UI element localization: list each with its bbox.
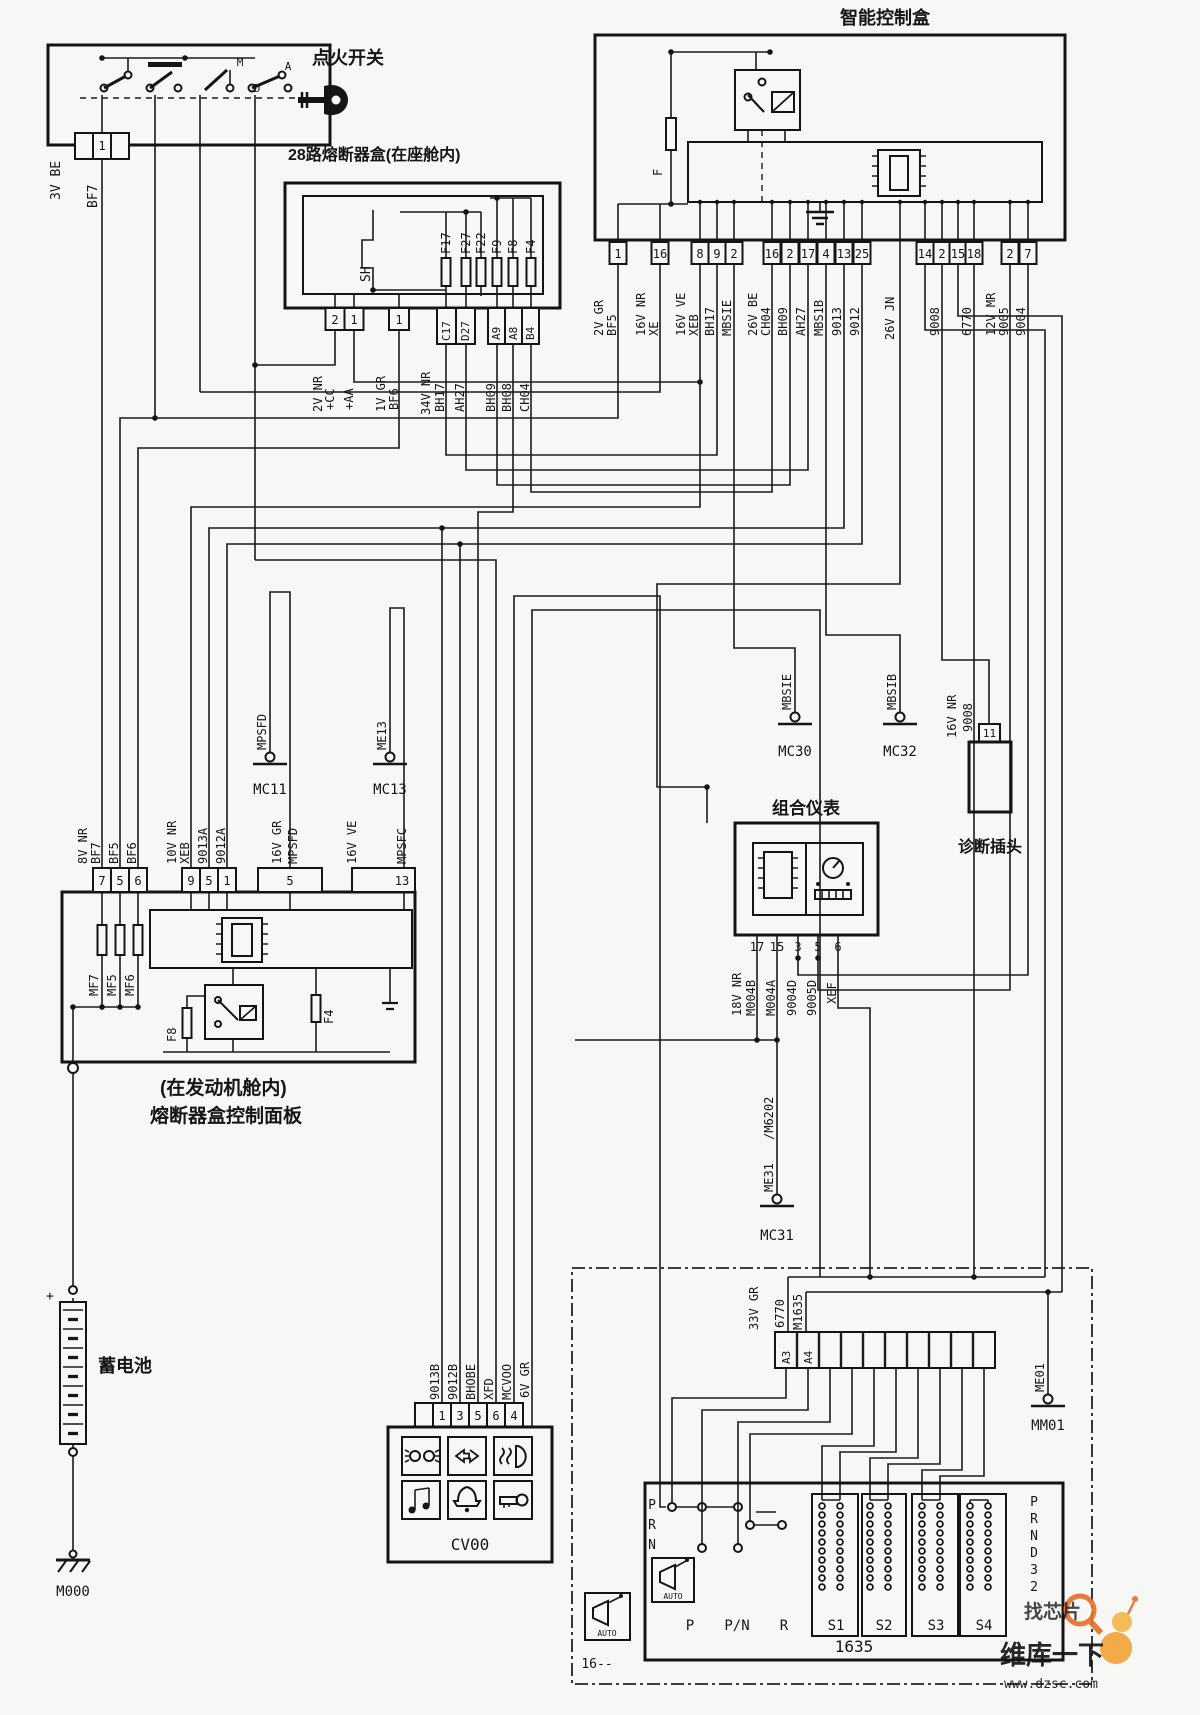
fuse-mf5 — [116, 925, 125, 955]
wire-label: 9008 — [928, 307, 942, 336]
wire-label: 16V NR — [634, 292, 648, 336]
solenoid-label: S2 — [876, 1618, 893, 1634]
cabin-title: 28路熔断器盒(在座舱内) — [288, 145, 460, 164]
wire-label: 12V MR — [984, 292, 998, 336]
pos-m: M — [237, 56, 244, 69]
fuse-f4 — [312, 995, 321, 1022]
pin-num: 3 — [794, 940, 801, 954]
fuse-label: F4 — [524, 240, 538, 254]
cluster-title: 组合仪表 — [772, 798, 841, 818]
wire-label: MBSIE — [720, 300, 734, 336]
wire-label: XE — [647, 322, 661, 336]
solenoid-label: S3 — [928, 1618, 945, 1634]
wire-label: AH27 — [453, 383, 467, 412]
pin-num: 6 — [492, 1409, 499, 1423]
pin-num: 6 — [134, 874, 141, 888]
pos-d: D — [254, 82, 261, 95]
relay-icon — [735, 70, 800, 130]
gear-letter: R — [648, 1518, 656, 1533]
headlight-icon — [405, 1450, 439, 1462]
label-16: 16-- — [581, 1657, 612, 1672]
wire-label: 6770 — [960, 307, 974, 336]
wire-label: 6V GR — [518, 1361, 532, 1398]
wire-label: 10V NR — [165, 820, 179, 864]
gear-letter: P — [1030, 1495, 1038, 1510]
wire-label: 6770 — [773, 1299, 787, 1328]
fuse-label: MF6 — [123, 974, 137, 996]
pin-num: 17 — [801, 247, 815, 261]
pin-num: 25 — [855, 247, 869, 261]
engine-fuse-panel: 7 5 6 9 5 1 5 13 8V NR BF7 BF5 BF6 10V N… — [62, 820, 415, 1127]
wire-label: 16V NR — [945, 694, 959, 738]
pin-num: 1 — [438, 1409, 445, 1423]
engine-title-1: (在发动机舱内) — [160, 1076, 287, 1099]
ground-name: MC31 — [760, 1228, 794, 1244]
fuse-f-symbol — [666, 118, 676, 150]
pin-num: 16 — [765, 247, 779, 261]
schematic-page: M A D 点火开关 1 3V BE BF7 28路熔断器盒(在座舱内) SH … — [0, 0, 1200, 1715]
fuse-f-label: F — [651, 169, 665, 176]
fuse-symbols — [442, 258, 536, 286]
internal-ground-icon — [382, 1003, 398, 1009]
wire-label: 2V GR — [592, 299, 606, 336]
wire-label: 16V VE — [674, 293, 688, 336]
music-note-icon — [409, 1488, 430, 1514]
fuse-mf6 — [134, 925, 143, 955]
wire-label: 8V NR — [76, 827, 90, 864]
pin-num: 5 — [205, 874, 212, 888]
relay-icon — [205, 985, 263, 1039]
wire-label: M004B — [744, 980, 758, 1016]
wire-label: 9004D — [785, 980, 799, 1016]
wire-label: XEB — [178, 842, 192, 864]
position-label: R — [780, 1618, 789, 1634]
cabin-pin: A9 — [490, 327, 503, 340]
wire-label: XFD — [482, 1378, 496, 1400]
bell-icon — [454, 1487, 480, 1512]
conn-label: 33V GR — [747, 1286, 761, 1330]
wire-label: 9005D — [805, 980, 819, 1016]
fuse-f8 — [183, 1008, 192, 1038]
wire-label: MPSFD — [286, 828, 300, 864]
wire-label: 9012A — [214, 827, 228, 864]
wire-label: 16V VE — [345, 821, 359, 864]
cabin-pin: C17 — [440, 321, 453, 341]
wire-label: XEF — [825, 982, 839, 1004]
pos-a: A — [285, 60, 292, 73]
pin-num: 5 — [116, 874, 123, 888]
smart-title: 智能控制盒 — [840, 7, 931, 28]
fuse-label: F8 — [506, 240, 520, 254]
wire-label: BF5 — [107, 842, 121, 864]
cabin-pin: 2 — [331, 313, 338, 327]
pin-num: 7 — [1024, 247, 1031, 261]
battery: + 蓄电池 — [46, 1286, 152, 1456]
pin-num: 14 — [918, 247, 932, 261]
ic-chip-icon — [758, 852, 798, 898]
gear-letter: N — [648, 1538, 656, 1553]
auto-label: AUTO — [597, 1629, 616, 1638]
instrument-cluster: 组合仪表 17 15 3 5 6 18V NR M004B M004A 9004… — [730, 798, 878, 1016]
pin-num: 11 — [983, 727, 996, 740]
pin-num: 16 — [653, 247, 667, 261]
pin-num: 9 — [713, 247, 720, 261]
gear-letter: P — [648, 1498, 656, 1513]
connector-strip: A3 A4 — [775, 1332, 995, 1368]
wire-label: 9013 — [830, 307, 844, 336]
wire-label: BF7 — [89, 842, 103, 864]
key-icon — [298, 85, 348, 115]
wire-label: BF5 — [605, 314, 619, 336]
fuse-label: F17 — [439, 232, 453, 254]
ignition-title: 点火开关 — [312, 47, 384, 68]
solenoid-label: S1 — [828, 1618, 845, 1634]
pin-num: 1 — [223, 874, 230, 888]
cabin-pin: D27 — [459, 321, 472, 341]
pin-num: 4 — [822, 247, 829, 261]
cv00-label: CV00 — [451, 1535, 490, 1554]
wire-label: 9008 — [961, 703, 975, 732]
switch-contacts-icon — [101, 58, 292, 92]
fuse-label: F8 — [165, 1028, 179, 1042]
wire-label: +AA — [342, 388, 356, 410]
position-label: P/N — [724, 1618, 749, 1634]
pin-num: 13 — [837, 247, 851, 261]
auto-selector-icon: AUTO — [652, 1558, 694, 1602]
wire-label: M004A — [764, 979, 778, 1016]
gear-letter: D — [1030, 1546, 1038, 1561]
wire-label: 1V GR — [374, 375, 388, 412]
cabin-pin: 1 — [395, 313, 402, 327]
wire-label: MCVOO — [500, 1364, 514, 1400]
cabin-pin: B4 — [524, 326, 537, 340]
pin-num: 3 — [456, 1409, 463, 1423]
watermark-text-1: 找芯片 — [1024, 1600, 1081, 1623]
pin-num: 17 — [750, 940, 764, 954]
wire-label: 34V NR — [419, 371, 433, 415]
wire-label: ME13 — [375, 721, 389, 750]
transmission-section: 33V GR 6770 M1635 A3 A4 ME01 MM01 P R N … — [572, 1268, 1092, 1684]
wire-label: MBSIE — [780, 674, 794, 710]
turn-signal-icon — [456, 1450, 478, 1462]
smart-pins: 1 2V GR BF5 16 16V NR XE 8 16V VE XEB 9 … — [592, 242, 1037, 340]
ignition-pin: 1 — [98, 139, 105, 153]
cell-label: A3 — [780, 1351, 793, 1364]
wire-label: MBS1B — [812, 300, 826, 336]
cell-label: A4 — [802, 1350, 815, 1364]
pin-num: 8 — [696, 247, 703, 261]
solenoid-columns — [812, 1494, 1006, 1636]
position-label: P — [686, 1618, 694, 1634]
pin-num: 1 — [614, 247, 621, 261]
ground-name: M000 — [56, 1584, 90, 1600]
auto-label: AUTO — [663, 1592, 682, 1601]
wire-label: CH04 — [518, 383, 532, 412]
wire-label: AH27 — [794, 307, 808, 336]
watermark-url: www.dzsc.com — [1004, 1677, 1098, 1692]
wire-label: CH04 — [759, 307, 773, 336]
fuse-label: F22 — [474, 232, 488, 254]
wire-label: /M6202 — [762, 1097, 776, 1140]
cabin-pin: A8 — [507, 327, 520, 340]
key-icon — [500, 1495, 528, 1509]
diag-title: 诊断插头 — [958, 837, 1022, 856]
watermark-brand: 维库一下 — [1000, 1640, 1104, 1670]
pin-num: 5 — [814, 940, 821, 954]
cabin-fuse-box: 28路熔断器盒(在座舱内) SH F17 F27 F22 F9 F8 F4 2 … — [285, 145, 560, 415]
pin-num: 6 — [834, 940, 841, 954]
wire-label: 9012B — [446, 1364, 460, 1400]
solenoid-label: S4 — [976, 1618, 993, 1634]
wire-label: BF6 — [387, 388, 401, 410]
wire-label: 9005 — [997, 307, 1011, 336]
fuse-label: F9 — [490, 240, 504, 254]
ground-name: MC11 — [253, 782, 287, 798]
wire-label: 9012 — [848, 307, 862, 336]
internal-ground-icon — [806, 212, 834, 224]
pin-num: 4 — [510, 1409, 517, 1423]
auto-selector-icon-outer: AUTO — [585, 1593, 630, 1640]
gear-letter: 3 — [1030, 1563, 1038, 1578]
pin-num: 15 — [770, 940, 784, 954]
ignition-conn-label: 3V BE — [49, 161, 64, 200]
wire-label: XEB — [687, 314, 701, 336]
wire-label: M1635 — [791, 1294, 805, 1330]
connector-node — [68, 1063, 78, 1073]
pin-num: 2 — [786, 247, 793, 261]
gear-letter: R — [1030, 1512, 1038, 1527]
wire-label: +CC — [323, 388, 337, 410]
wire-label: BH09 — [776, 307, 790, 336]
wire-label: ME01 — [1033, 1363, 1047, 1392]
wire-label: MPSFD — [255, 714, 269, 750]
pin-num: 5 — [474, 1409, 481, 1423]
wire-label: BH17 — [703, 307, 717, 336]
pin-num: 9 — [187, 874, 194, 888]
wire-label: ME31 — [762, 1163, 776, 1192]
watermark: 找芯片 维库一下 www.dzsc.com — [1000, 1596, 1138, 1692]
wire-label: BHOBE — [464, 1364, 478, 1400]
defrost-icon — [500, 1446, 526, 1467]
wire-label: 9004 — [1014, 307, 1028, 336]
fuse-label: MF5 — [105, 974, 119, 996]
ground-name: MM01 — [1031, 1418, 1065, 1434]
ground-m000: M000 — [56, 1551, 90, 1601]
wire-label: BH09 — [484, 383, 498, 412]
sh-label: SH — [359, 266, 374, 282]
fuse-label: MF7 — [87, 974, 101, 996]
pin-num: 15 — [951, 247, 965, 261]
gear-letter: N — [1030, 1529, 1038, 1544]
pin-num: 5 — [286, 874, 293, 888]
pin-num: 2 — [730, 247, 737, 261]
box-label-1635: 1635 — [835, 1637, 874, 1656]
wire-label: MPSFC — [395, 828, 409, 864]
battery-title: 蓄电池 — [98, 1355, 152, 1376]
ground-name: MC13 — [373, 782, 407, 798]
ic-chip-icon — [216, 918, 268, 962]
gearbox-1635-box — [645, 1483, 1063, 1660]
wire-label: MBSIB — [885, 674, 899, 710]
wire-label: 26V BE — [746, 293, 760, 336]
gear-letter: 2 — [1030, 1580, 1038, 1595]
mascot-icon — [1100, 1632, 1132, 1664]
wire-label: BF6 — [125, 842, 139, 864]
pin-num: 13 — [395, 874, 409, 888]
wiring-harness — [70, 49, 1062, 1550]
wire-label: 18V NR — [730, 972, 744, 1016]
wire-label: 16V GR — [270, 820, 284, 864]
fuse-label: F27 — [459, 232, 473, 254]
ground-name: MC32 — [883, 744, 917, 760]
plus-sign: + — [46, 1289, 54, 1304]
engine-title-2: 熔断器盒控制面板 — [150, 1104, 303, 1127]
smart-control-box: 智能控制盒 F 1 2V GR BF5 16 16V NR XE 8 16V V… — [592, 7, 1065, 340]
wire-label: BH17 — [433, 383, 447, 412]
ic-chip-icon — [872, 150, 926, 196]
wiring-diagram-svg: M A D 点火开关 1 3V BE BF7 28路熔断器盒(在座舱内) SH … — [0, 0, 1200, 1715]
pin-num: 2 — [938, 247, 945, 261]
cabin-pin: 1 — [350, 313, 357, 327]
wire-label: 9013A — [196, 827, 210, 864]
pin-num: 2 — [1006, 247, 1013, 261]
pin-num: 7 — [98, 874, 105, 888]
cv00-switch-unit: 9013B 9012B BHOBE XFD MCVOO 6V GR 1 3 5 … — [388, 1361, 552, 1562]
wire-label-26v-jn: 26V JN — [883, 297, 897, 340]
fuse-mf7 — [98, 925, 107, 955]
wire-label: BH08 — [500, 383, 514, 412]
selector-contacts — [668, 1503, 786, 1552]
fuse-label: F4 — [322, 1010, 336, 1024]
ignition-wire-label: BF7 — [86, 185, 101, 208]
ground-name: MC30 — [778, 744, 812, 760]
pin-num: 18 — [967, 247, 981, 261]
wire-label: 9013B — [428, 1364, 442, 1400]
